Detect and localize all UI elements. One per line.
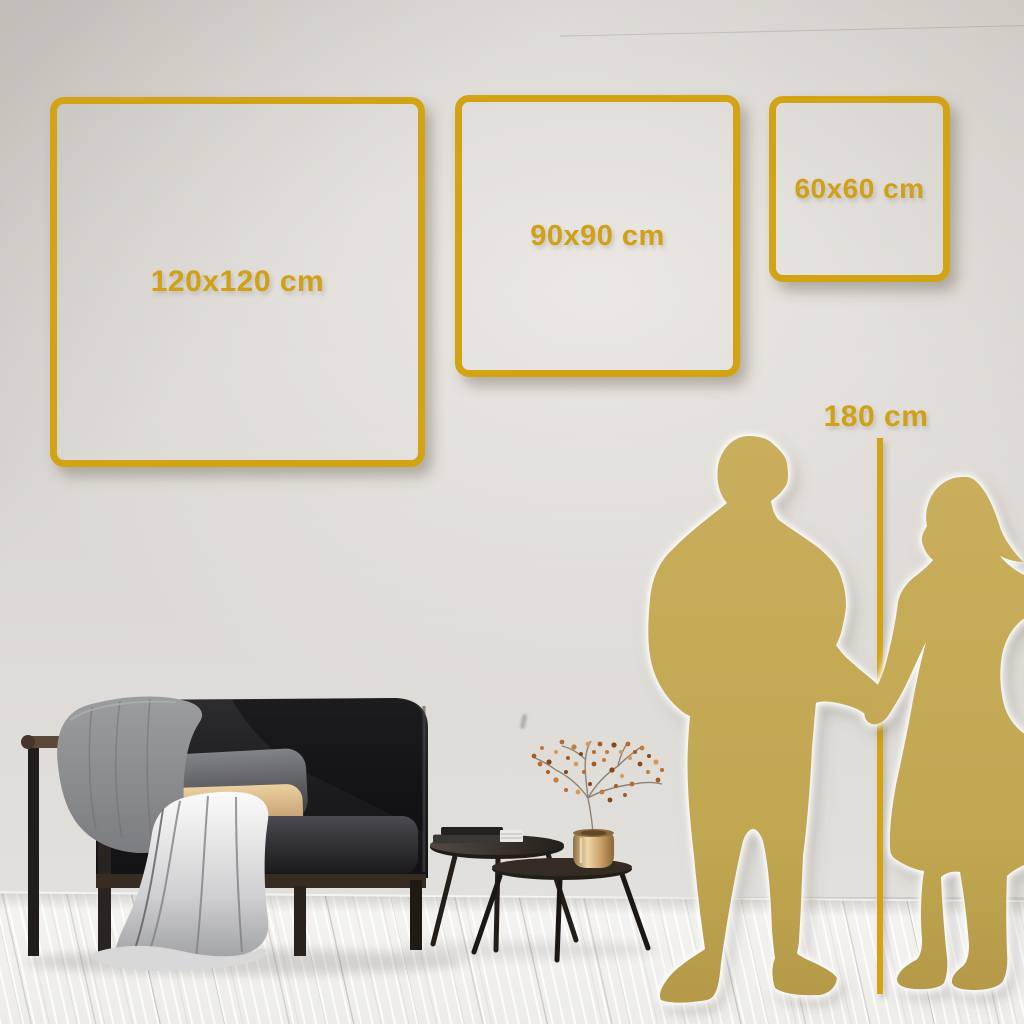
floor (0, 893, 1024, 1024)
ceiling-shadow-line (560, 24, 1024, 36)
size-frame-label-60x60: 60x60 cm (794, 173, 924, 205)
height-ruler-label: 180 cm (814, 400, 938, 434)
size-frame-label-120x120: 120x120 cm (151, 265, 325, 299)
size-frame-label-90x90: 90x90 cm (530, 220, 665, 253)
size-frame-120x120: 120x120 cm (50, 97, 425, 467)
height-ruler-line (877, 438, 883, 994)
wall-smudge (519, 714, 527, 730)
size-frame-90x90: 90x90 cm (455, 95, 740, 377)
size-guide-scene: 120x120 cm 90x90 cm 60x60 cm 180 cm (0, 0, 1024, 1024)
size-frame-60x60: 60x60 cm (769, 96, 950, 282)
